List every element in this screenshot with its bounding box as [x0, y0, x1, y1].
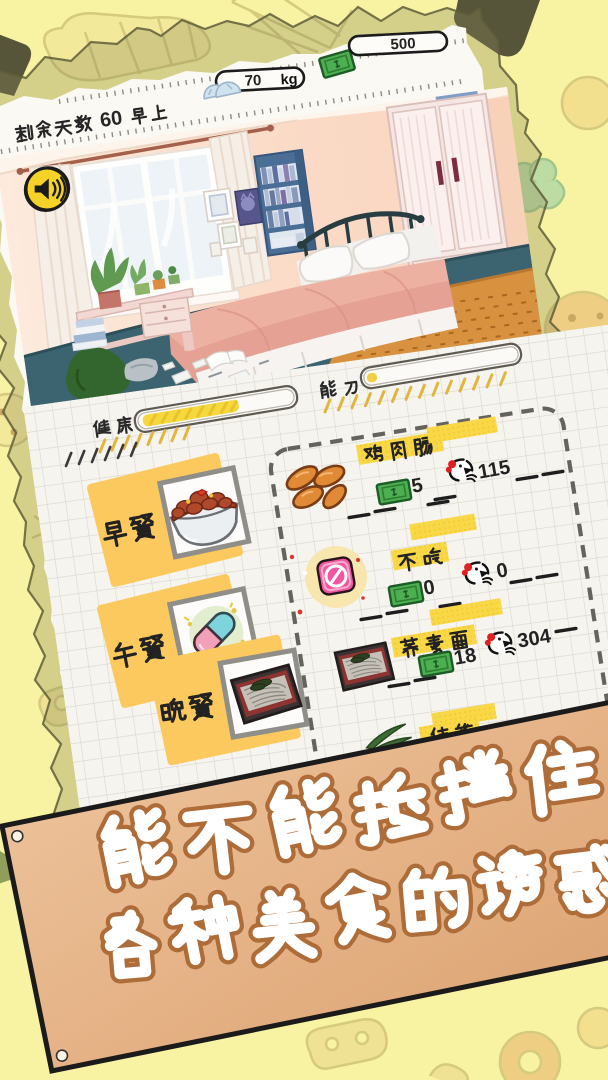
svg-text:500: 500 — [390, 35, 416, 53]
svg-text:70: 70 — [244, 72, 262, 90]
svg-text:60: 60 — [99, 107, 124, 132]
svg-text:kg: kg — [280, 72, 298, 89]
svg-text:18: 18 — [452, 644, 478, 670]
